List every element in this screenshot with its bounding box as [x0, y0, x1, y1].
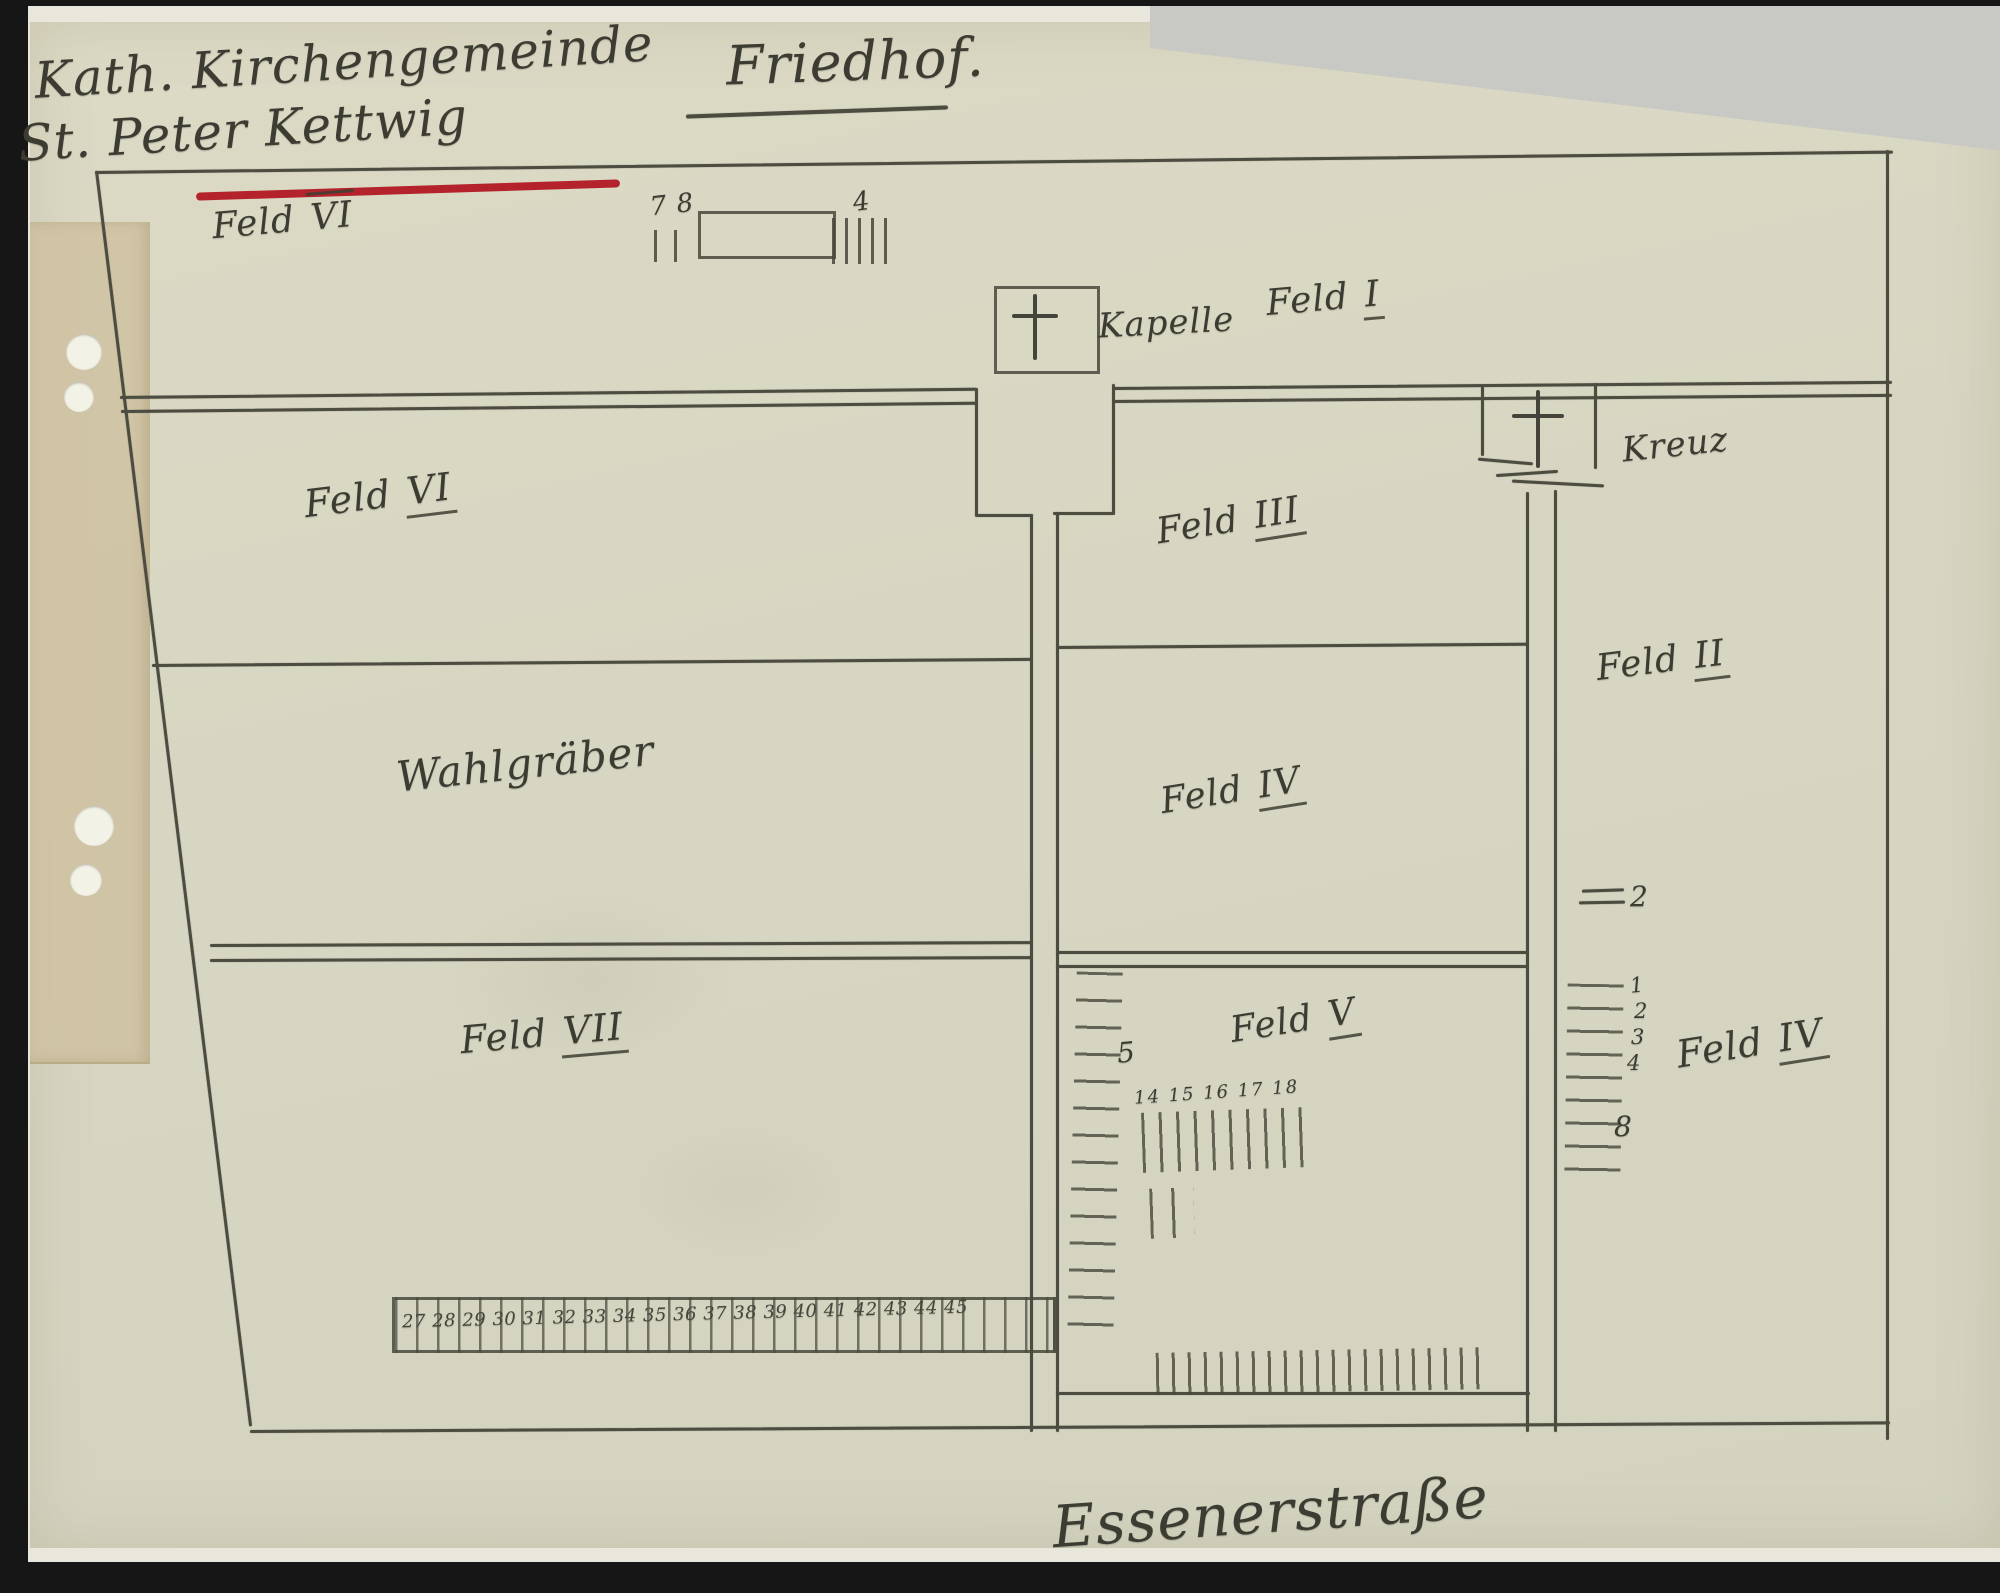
chapel-corridor-left-stub [975, 388, 978, 516]
middle-column-divider-2b [1056, 965, 1528, 968]
feld4-bottom-label: 8 [1614, 1112, 1633, 1141]
kreuz-enclosure-left [1481, 386, 1484, 456]
kreuz-cross-icon [1512, 390, 1564, 468]
central-path-left-line [1030, 514, 1033, 1432]
kreuz-enclosure-right [1594, 383, 1597, 469]
scale-right-number: 4 [851, 188, 872, 217]
scale-left-tick-marks [654, 230, 690, 262]
feld2-row-label: 2 [1630, 882, 1649, 911]
chapel-corridor-flange-left [975, 514, 1033, 517]
feld4-row-label-2: 2 [1634, 1000, 1648, 1022]
feld5-bottom-grave-ticks [1156, 1347, 1489, 1395]
feld5-grave-ticks-row [1141, 1107, 1307, 1173]
punch-hole [74, 806, 114, 846]
plan-boundary-right [1886, 150, 1889, 1440]
feld4-row-label-4: 4 [1627, 1052, 1641, 1074]
scale-box [698, 211, 836, 259]
feld4-row-label-3: 3 [1631, 1026, 1645, 1048]
chapel-cross-icon [1012, 294, 1058, 360]
chapel-corridor-flange-right [1053, 512, 1115, 515]
chapel-corridor-right-stub [1112, 384, 1115, 514]
feld5-side-label: 5 [1116, 1037, 1137, 1068]
feld5-grave-ticks-pair [1149, 1187, 1195, 1239]
chapel-label: Kapelle [1097, 302, 1235, 345]
page-title: Friedhof. [725, 30, 985, 96]
central-path-right-line [1056, 512, 1059, 1432]
scale-left-numbers: 7 8 [649, 190, 696, 222]
field-label-strip-right: FeldI [1265, 275, 1385, 323]
scanned-cemetery-plan: Kath. Kirchengemeinde St. Peter Kettwig … [0, 0, 2000, 1593]
right-path-right-line [1554, 490, 1557, 1432]
right-path-left-line [1526, 492, 1529, 1432]
feld4-grave-ticks [1564, 984, 1623, 1177]
punch-hole [64, 382, 94, 412]
punch-hole [66, 334, 102, 370]
feld4-row-label-1: 1 [1629, 973, 1646, 996]
scale-right-tick-marks [832, 218, 888, 264]
punch-hole [70, 864, 102, 896]
feld5-left-grave-ticks [1067, 971, 1123, 1338]
middle-column-divider-2a [1056, 951, 1528, 954]
